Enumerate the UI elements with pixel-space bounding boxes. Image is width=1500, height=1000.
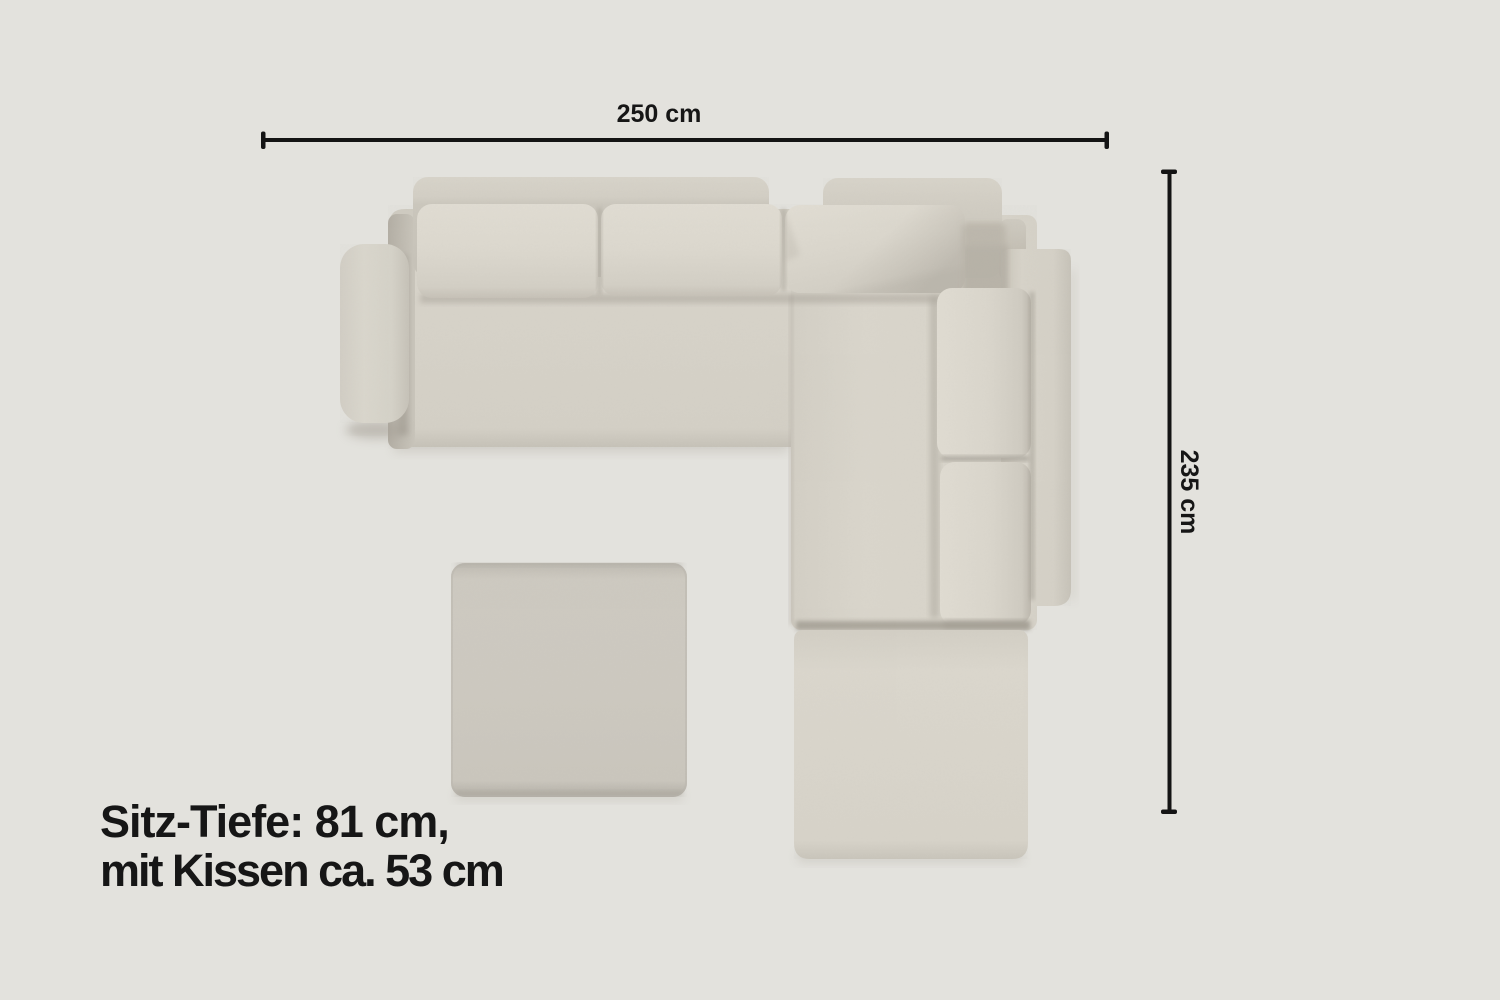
svg-text:250 cm: 250 cm: [617, 100, 702, 128]
svg-text:mit Kissen ca. 53 cm: mit Kissen ca. 53 cm: [100, 845, 503, 896]
svg-text:Sitz-Tiefe: 81 cm,: Sitz-Tiefe: 81 cm,: [100, 796, 449, 847]
svg-text:235 cm: 235 cm: [1175, 450, 1203, 535]
